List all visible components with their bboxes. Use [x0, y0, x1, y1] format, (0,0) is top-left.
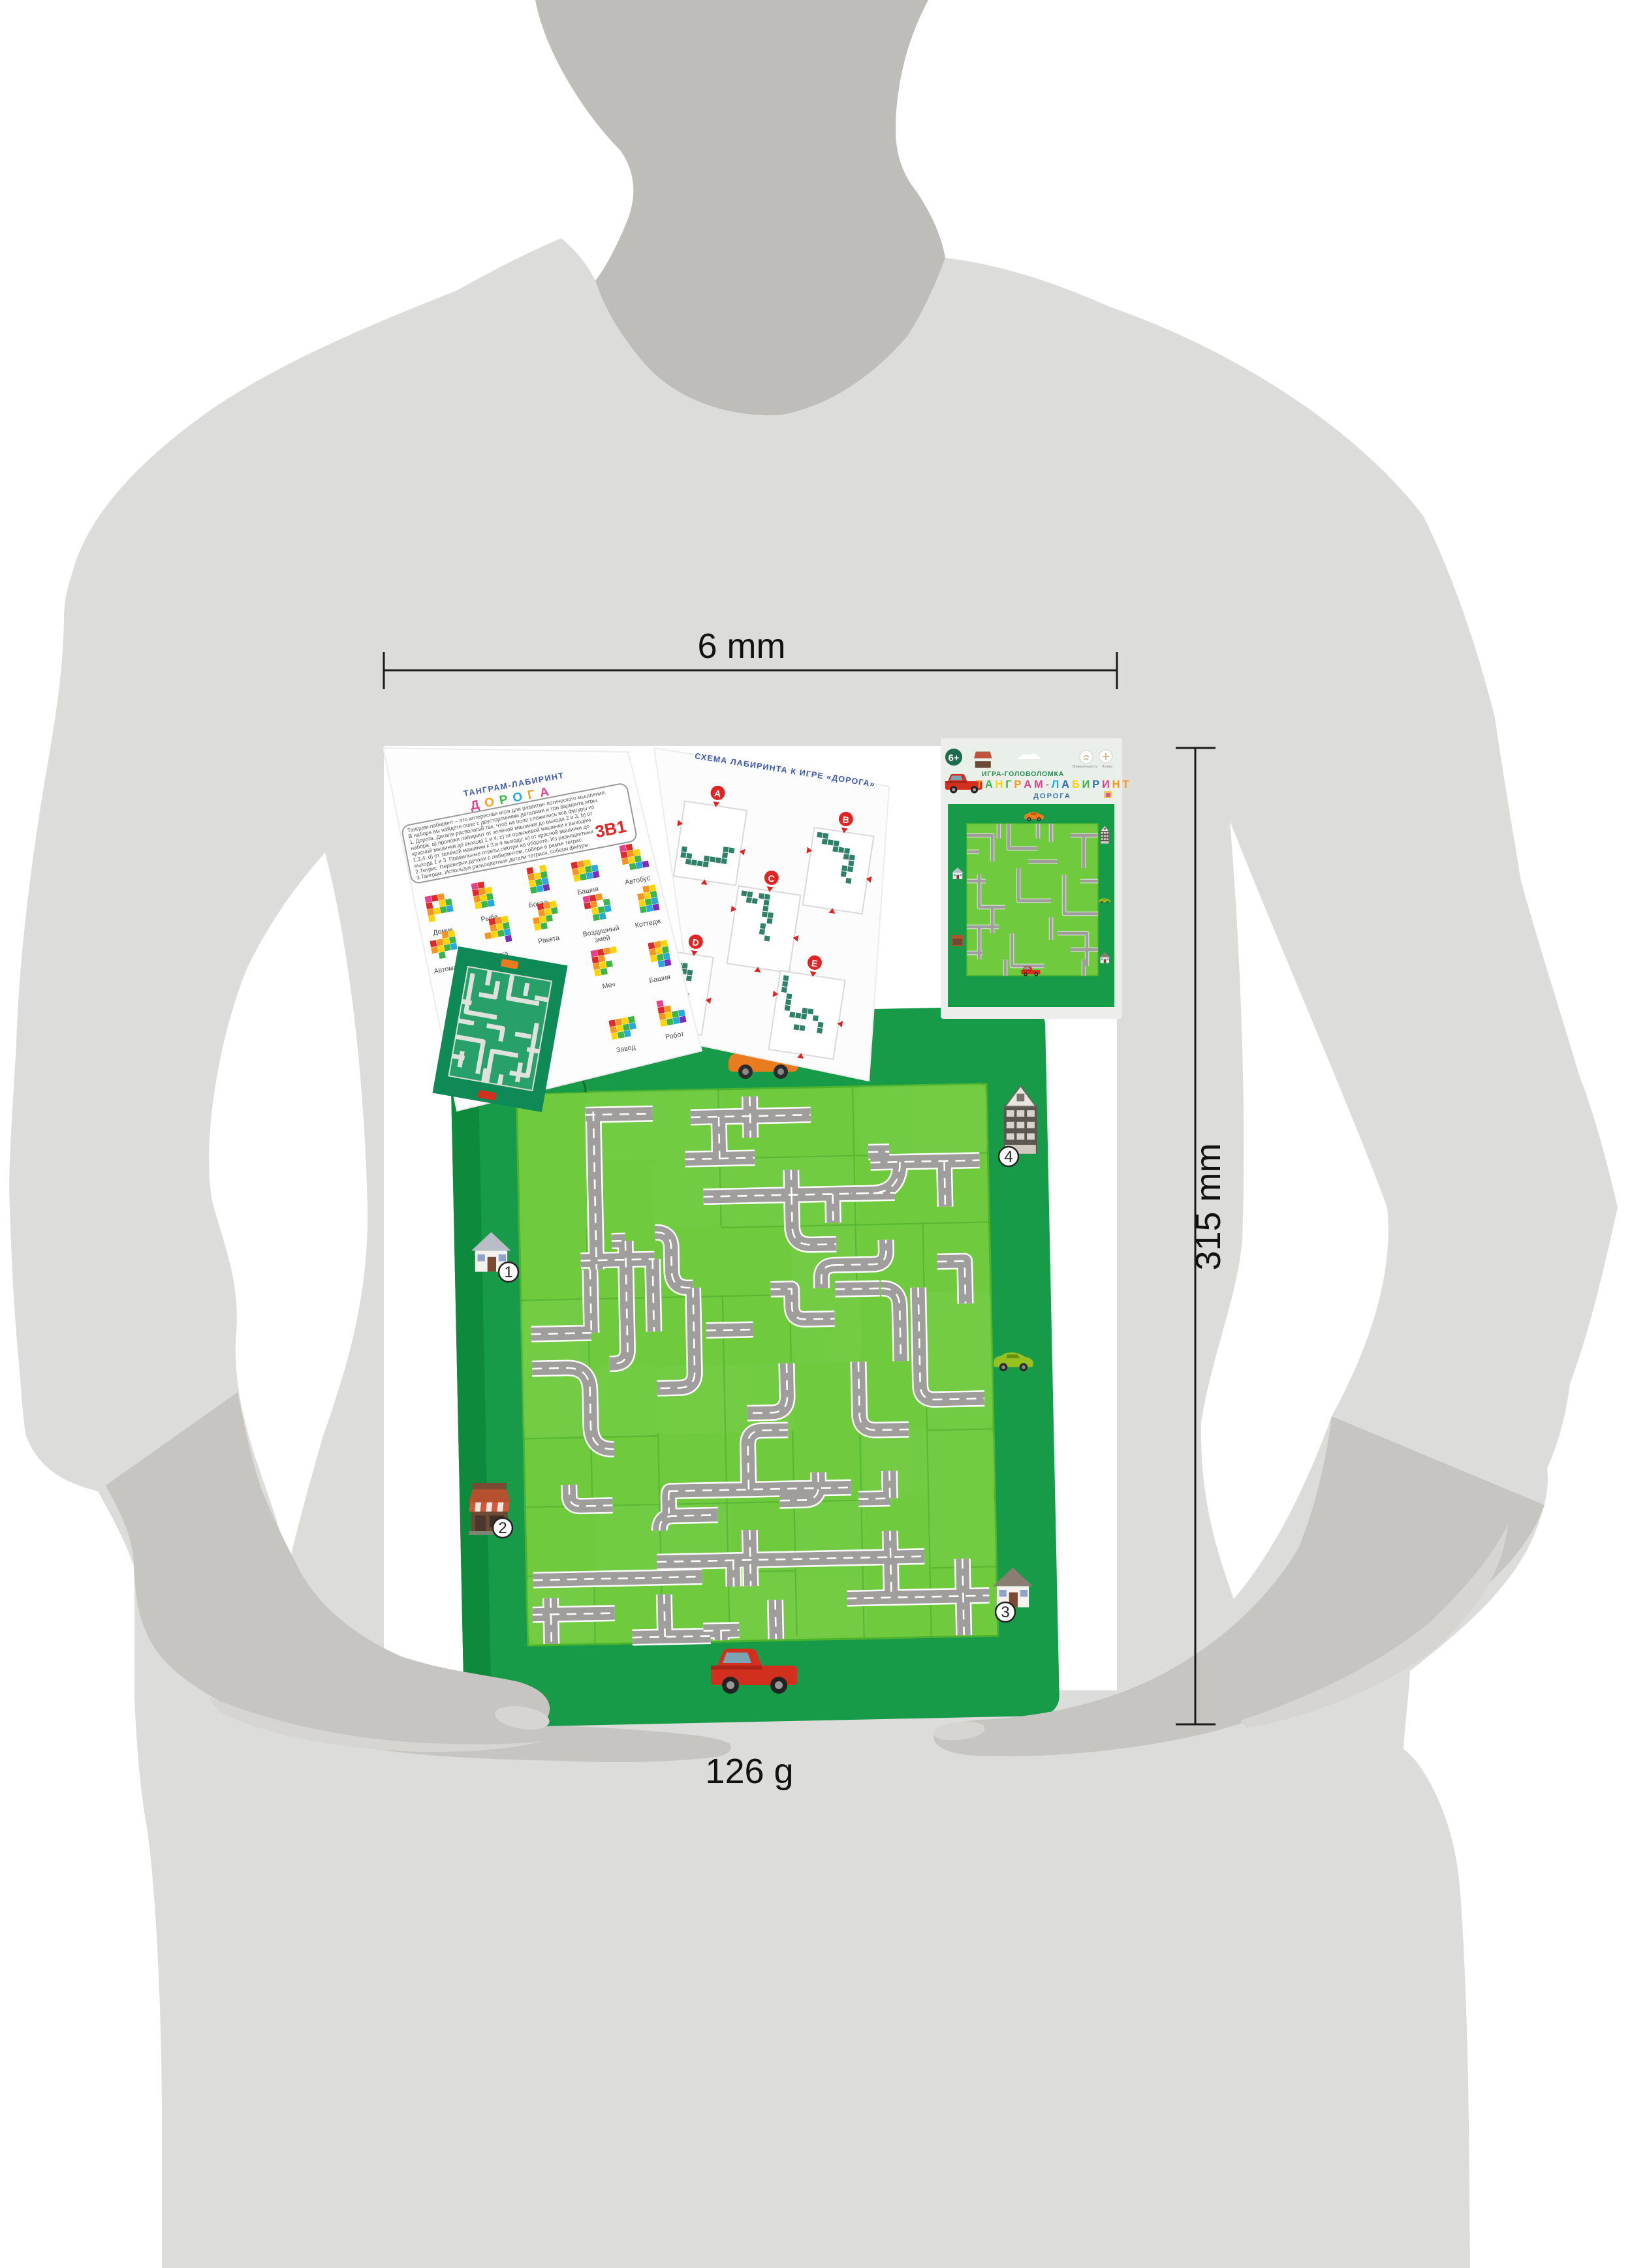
svg-text:3: 3	[1001, 1604, 1009, 1621]
svg-text:2: 2	[498, 1519, 507, 1537]
svg-text:Т А Н Г Р А М - Л А Б И Р И Н: Т А Н Г Р А М - Л А Б И Р И Н Т	[976, 779, 1129, 790]
svg-text:ДОРОГА: ДОРОГА	[1033, 792, 1071, 800]
svg-text:1: 1	[504, 1264, 512, 1281]
svg-text:ИГРА-ГОЛОВОЛОМКА: ИГРА-ГОЛОВОЛОМКА	[982, 770, 1064, 778]
svg-text:Логика: Логика	[1102, 765, 1112, 769]
svg-text:Внимательность: Внимательность	[1073, 765, 1098, 769]
svg-text:315 mm: 315 mm	[1189, 1143, 1228, 1270]
svg-text:6+: 6+	[948, 753, 959, 764]
svg-text:6 mm: 6 mm	[698, 627, 786, 666]
svg-text:4: 4	[1004, 1148, 1012, 1166]
svg-text:126 g: 126 g	[705, 1752, 793, 1791]
